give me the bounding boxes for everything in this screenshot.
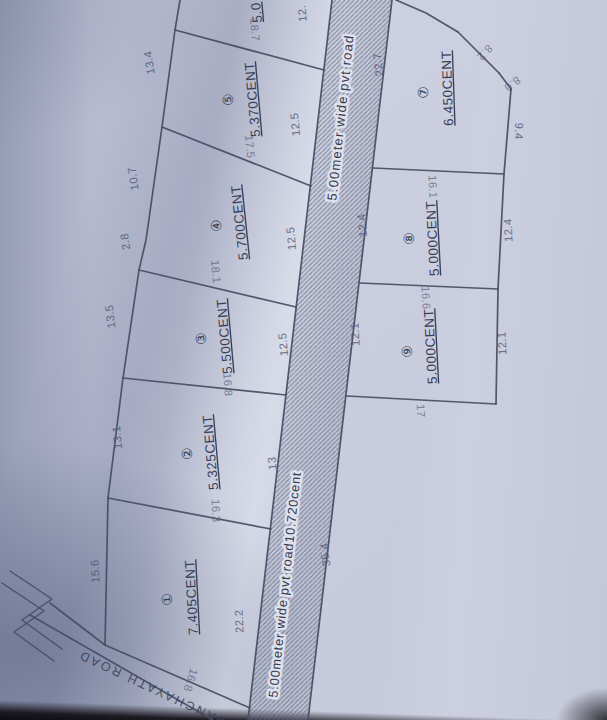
- plot7-right-edge: [504, 89, 511, 174]
- plot9-bottom-edge: [347, 396, 496, 404]
- dim-plot6-right-partial: 12.: [295, 4, 308, 22]
- plot2-area: 5.325CENT: [200, 414, 222, 490]
- dim-plot7-ne-a: 8.2: [475, 42, 495, 63]
- boundary-plot4-plot5: [162, 127, 311, 186]
- dim-plot9-left: 12.1: [348, 322, 362, 346]
- plot4-number: ④: [207, 218, 224, 233]
- plot8-area: 5.000CENT: [423, 200, 442, 276]
- dim-plot3-outer: 13.5: [103, 304, 118, 329]
- dim-plot7-ne-b: 8.0: [502, 74, 523, 94]
- plot7-top-edge: [396, 0, 458, 32]
- boundary-plot1-plot2: [108, 498, 271, 529]
- pvt-road-strip: [248, 0, 392, 720]
- dim-plot9-right: 12.1: [495, 331, 508, 355]
- dim-plot9-bottom: 17: [415, 404, 427, 418]
- dim-gap-5-6: 18.7: [248, 17, 262, 42]
- dim-gap-7-8: 16.1: [427, 175, 440, 199]
- dim-plot2-outer: 13.1: [110, 425, 124, 450]
- dim-plot4-outer-b: 2.8: [118, 232, 132, 251]
- dim-plot5-outer: 13.4: [141, 50, 157, 75]
- survey-sketch-photo: PANCHAYATH ROAD 5.00meter wide pvt road …: [0, 0, 607, 720]
- panchayath-road-upper-edge: [50, 603, 105, 645]
- dim-gap-2-3: 16.8: [221, 373, 235, 397]
- dim-plot4-right: 12.5: [284, 226, 298, 251]
- plot3-number: ③: [192, 331, 209, 345]
- plot7-number: ⑦: [415, 85, 431, 99]
- plot1-area: 7.405CENT: [182, 559, 201, 635]
- dim-plot8-right: 12.4: [501, 218, 514, 242]
- dim-gap-1-2: 16.3: [209, 499, 222, 523]
- dim-road-right-side: 35.4: [318, 542, 333, 567]
- plot-layout-drawing: PANCHAYATH ROAD 5.00meter wide pvt road …: [0, 0, 607, 720]
- dim-gap-4-5: 17.5: [243, 134, 257, 159]
- dim-plot7-right: 9.4: [513, 122, 526, 139]
- dim-plot4-outer-a: 10.7: [125, 166, 141, 191]
- plot5-number: ⑤: [219, 92, 236, 106]
- plot7-area: 6.450CENT: [439, 50, 457, 126]
- dim-plot8-left: 12.4: [355, 213, 369, 238]
- plot9-number: ⑨: [399, 344, 416, 358]
- dim-plot1-outer: 15.6: [88, 559, 101, 583]
- plot1-number: ①: [159, 592, 176, 606]
- plot2-number: ②: [178, 446, 195, 460]
- plot8-number: ⑧: [401, 231, 418, 245]
- plot4-area: 5.700CENT: [228, 184, 251, 261]
- dim-plot3-right: 12.5: [276, 332, 290, 357]
- plot5-area: 5.370CENT: [242, 61, 264, 137]
- plot3-area: 5.500CENT: [214, 298, 236, 374]
- dim-gap-8-9: 16.6: [420, 286, 433, 310]
- dim-gap-3-4: 18.1: [209, 259, 223, 284]
- boundary-plot2-plot3: [123, 378, 286, 395]
- dim-plot1-right: 22.2: [232, 609, 245, 633]
- dim-plot5-right: 12.5: [288, 112, 302, 137]
- plot9-area: 5.000CENT: [421, 308, 440, 384]
- panchayath-road-label: PANCHAYATH ROAD: [76, 647, 227, 720]
- dim-plot2-right: 13: [266, 456, 279, 470]
- road-break-zigzag-1: [10, 571, 62, 649]
- boundary-plot7-plot8: [373, 168, 504, 174]
